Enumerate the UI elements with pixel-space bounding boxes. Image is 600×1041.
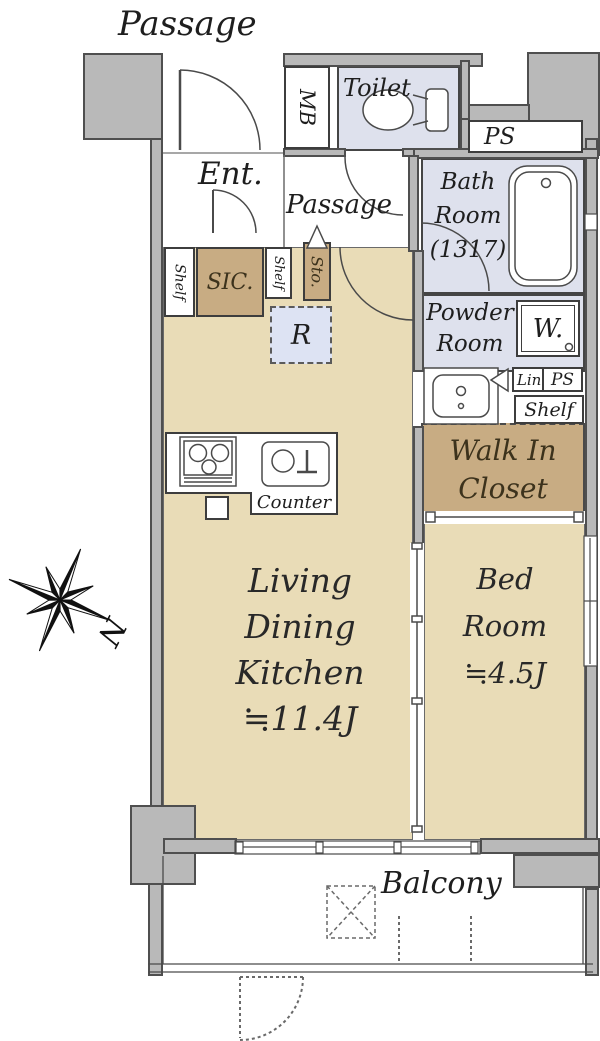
balcony-label: Balcony [381,866,502,901]
wall-divider-upper [408,155,419,252]
wall-top [283,53,483,67]
wall-bottom-left-seg [163,838,237,854]
room-label-line: (1317) [421,233,515,267]
linen-arrow-icon [491,369,508,391]
bathroom-label: Bath Room (1317) [421,165,515,267]
lower-door-swing-dashed [240,977,305,1040]
compass-rose: N [0,528,160,698]
storage-label: Sto. [308,256,327,288]
storage-closet: Sto. [303,242,331,301]
wall-right [585,138,598,854]
walk-in-closet-label: Walk In Closet [421,432,585,508]
wall-left-lower [148,883,163,976]
ldk-label: Living Dining Kitchen ≒11.4J [185,558,415,742]
pipe-space-top-label: PS [484,124,515,150]
shelf-mid-label: Shelf [271,256,286,290]
pillar-bottom-right [513,854,600,888]
meter-box: MB [284,66,330,149]
wall-right-lower [585,888,599,976]
compass-north-label: N [89,611,134,653]
counter-label-area: Counter [250,492,338,515]
pipe-space-mid-label: PS [551,370,574,390]
pillar-top-left [83,53,163,140]
sic-label: SIC. [207,270,254,295]
room-label-line: Room [428,603,582,650]
entrance-door-swing [163,70,283,153]
room-label-line: Walk In [421,432,585,470]
room-label-line: Room [421,329,519,360]
room-size-line: ≒4.5J [428,650,582,697]
wall-passage-top-a [283,148,346,157]
wall-toilet-right [460,60,470,120]
refrigerator-space: R [270,306,332,364]
room-label-line: Powder [421,298,519,329]
entrance-inner-door-swing [213,190,256,233]
wall-bottom-right-seg [480,838,600,854]
outside-passage-label: Passage [118,4,257,44]
room-size-line: ≒11.4J [185,696,415,742]
shelf-left-label: Shelf [172,264,188,301]
powder-room-label: Powder Room [421,298,519,360]
room-label-line: Bath [421,165,515,199]
washing-machine: W. [516,300,580,357]
shelf-right: Shelf [514,395,584,424]
meter-box-label: MB [295,89,319,126]
floor-plan: MB PS W. Lin. PS Shelf Shelf SIC. Shelf … [0,0,600,1041]
kitchen-counter [165,432,338,494]
shelf-right-label: Shelf [524,399,574,421]
bedroom-label: Bed Room ≒4.5J [428,556,582,697]
pipe-space-mid: PS [542,367,583,392]
room-label-line: Room [421,199,515,233]
room-label-line: Dining [185,604,415,650]
wall-left [150,138,163,808]
shelf-mid: Shelf [265,247,292,299]
inner-passage-label: Passage [286,190,392,220]
pipe-space-top: PS [468,120,583,153]
room-label-line: Living [185,558,415,604]
wic-bedroom-sliding-door [424,511,585,524]
balcony-window-band [235,841,480,854]
room-label-line: Bed [428,556,582,603]
room-label-line: Closet [421,470,585,508]
room-label-line: Kitchen [185,650,415,696]
shelf-left: Shelf [164,247,195,317]
refrigerator-label: R [291,320,311,351]
vanity-sink-icon [424,368,498,424]
counter-label: Counter [257,492,331,513]
toilet-label: Toilet [343,74,411,102]
counter-column [205,496,229,520]
compass-star [0,528,132,671]
shoes-in-closet: SIC. [196,247,264,317]
entrance-label: Ent. [198,156,263,192]
